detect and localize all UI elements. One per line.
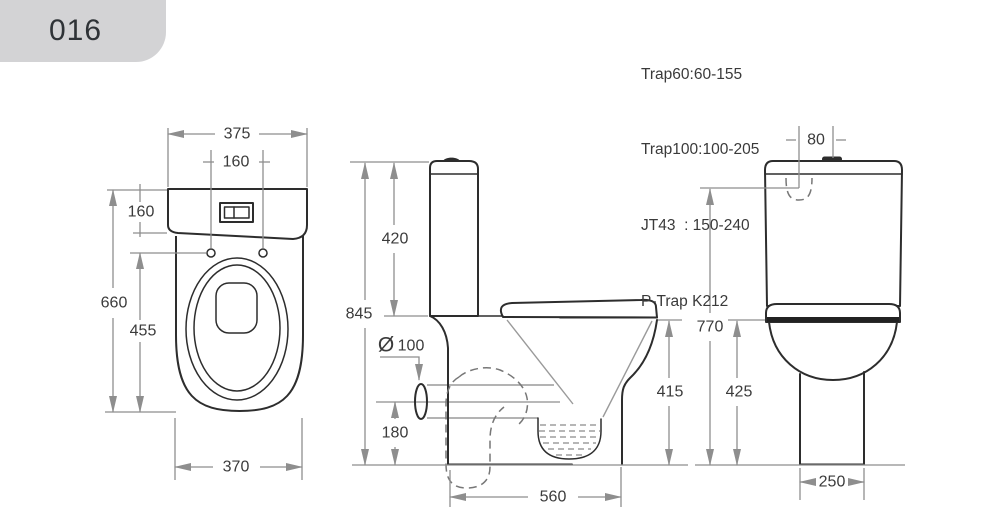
dim-front-tank-height: 160 — [128, 204, 155, 221]
spec-sheet: 375 160 660 160 455 — [0, 0, 1000, 522]
technical-drawing: 375 160 660 160 455 — [0, 0, 1000, 522]
model-number: 016 — [49, 14, 102, 47]
flush-button-side[interactable] — [443, 158, 460, 161]
side-cistern-outline — [430, 161, 478, 316]
trap-spec-line: Trap100:100-205 — [641, 137, 759, 162]
dim-front-tank-width: 375 — [224, 126, 251, 143]
front-bowl-outline — [176, 236, 303, 411]
dim-front-bowl-height: 455 — [130, 323, 157, 340]
dim-back-inlet-offset: 80 — [807, 132, 825, 149]
trapway-dashed — [446, 368, 528, 488]
trap-spec-line: JT43 : 150-240 — [641, 213, 759, 238]
dim-front-base-width: 370 — [223, 459, 250, 476]
dim-back-rim-height: 425 — [726, 384, 753, 401]
dim-side-overall-height: 845 — [346, 306, 373, 323]
dim-outlet-diameter: 100 — [398, 338, 425, 355]
model-badge: 016 — [0, 0, 166, 62]
front-view: 375 160 660 160 455 — [101, 126, 307, 481]
back-bowl-outline — [769, 322, 897, 380]
side-view: 845 420 Ø 100 180 560 — [346, 158, 688, 507]
inlet-fitting — [822, 157, 842, 163]
trap-specs: Trap60:60-155 Trap100:100-205 JT43 : 150… — [641, 11, 759, 365]
trap-spec-line: Trap60:60-155 — [641, 62, 759, 87]
sump-outline — [538, 418, 601, 459]
side-seat — [501, 300, 657, 318]
trap-spec-line: P-Trap K212 — [641, 289, 759, 314]
dim-side-bowl-height: 415 — [657, 384, 684, 401]
dim-back-base-width: 250 — [819, 474, 846, 491]
seat-hole-left — [207, 249, 215, 257]
side-dimensions: 845 420 Ø 100 180 560 — [346, 162, 688, 507]
front-cistern-outline — [168, 189, 307, 239]
dim-side-cistern-height: 420 — [382, 231, 409, 248]
dim-outlet-diameter-symbol: Ø — [378, 334, 394, 357]
dim-front-overall-height: 660 — [101, 295, 128, 312]
water-hatching — [539, 425, 600, 455]
dim-front-hole-spacing: 160 — [223, 154, 250, 171]
dim-side-depth: 560 — [540, 489, 567, 506]
dim-outlet-height: 180 — [382, 425, 409, 442]
seat-hole-right — [259, 249, 267, 257]
